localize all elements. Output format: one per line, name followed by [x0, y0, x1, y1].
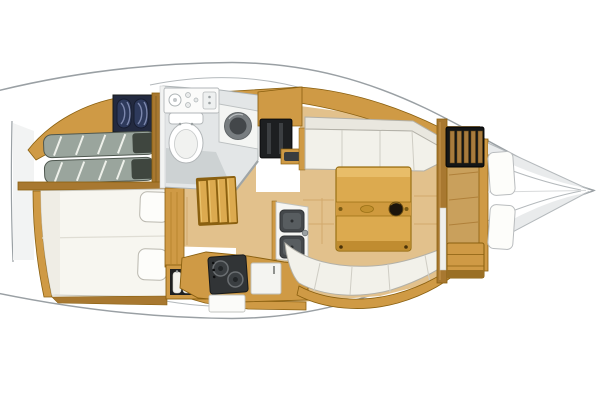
aft-cabin-port — [18, 93, 166, 190]
head-compartment — [160, 86, 258, 191]
transom-line — [11, 121, 13, 262]
forward-cabin — [437, 119, 488, 283]
v-berth-cushion — [488, 151, 516, 196]
cabin-divider-wall — [18, 182, 166, 190]
pillow — [137, 248, 167, 280]
shirt-on-hanger — [173, 272, 181, 293]
lazarette-area — [13, 123, 34, 260]
settee-armrest — [299, 128, 305, 170]
berth-baseboard — [52, 296, 167, 305]
toilet — [169, 113, 203, 163]
galley-locker-front — [209, 295, 245, 312]
v-berth — [487, 143, 589, 250]
yacht-floorplan — [0, 0, 600, 400]
stove — [208, 255, 248, 295]
vanity-counter — [164, 88, 219, 113]
faucet — [302, 230, 308, 236]
washbasin-counter — [219, 104, 258, 149]
cupholder — [389, 202, 403, 216]
berth-double-port — [43, 131, 157, 184]
refrigerator-front — [251, 263, 281, 294]
mirror-panel — [440, 208, 446, 270]
saloon-table — [336, 167, 411, 251]
slatted-shelf-locker — [446, 127, 484, 167]
yacht-floorplan-canvas — [0, 0, 600, 400]
table-handle — [361, 206, 374, 213]
companionway-steps — [196, 176, 238, 226]
v-berth-cushion — [487, 204, 515, 250]
chest-of-drawers — [447, 243, 484, 278]
cabin-bulkhead — [165, 188, 184, 267]
